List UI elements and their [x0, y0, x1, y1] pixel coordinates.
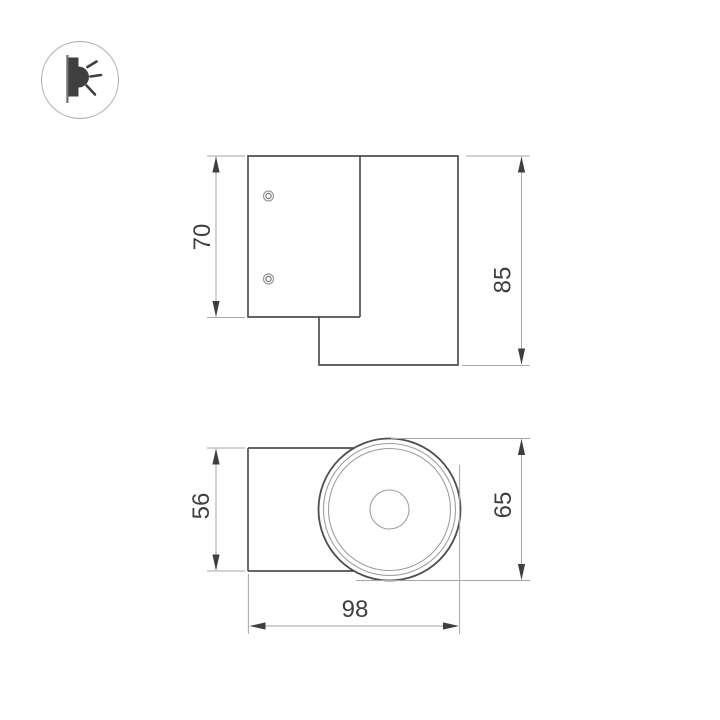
technical-drawing-canvas: 70 85 56 [0, 0, 720, 720]
dim-label-head-diameter: 65 [490, 492, 517, 519]
dim-label-total-height: 85 [490, 267, 517, 294]
dim-label-body-depth: 56 [188, 493, 215, 520]
head-outer-circle [319, 439, 461, 581]
dim-label-total-width: 98 [342, 596, 369, 623]
light-ray-icon [91, 75, 102, 77]
dim-label-plate-height: 70 [189, 224, 216, 251]
icon-wall-line [66, 55, 68, 103]
icon-fixture-body [69, 58, 79, 97]
